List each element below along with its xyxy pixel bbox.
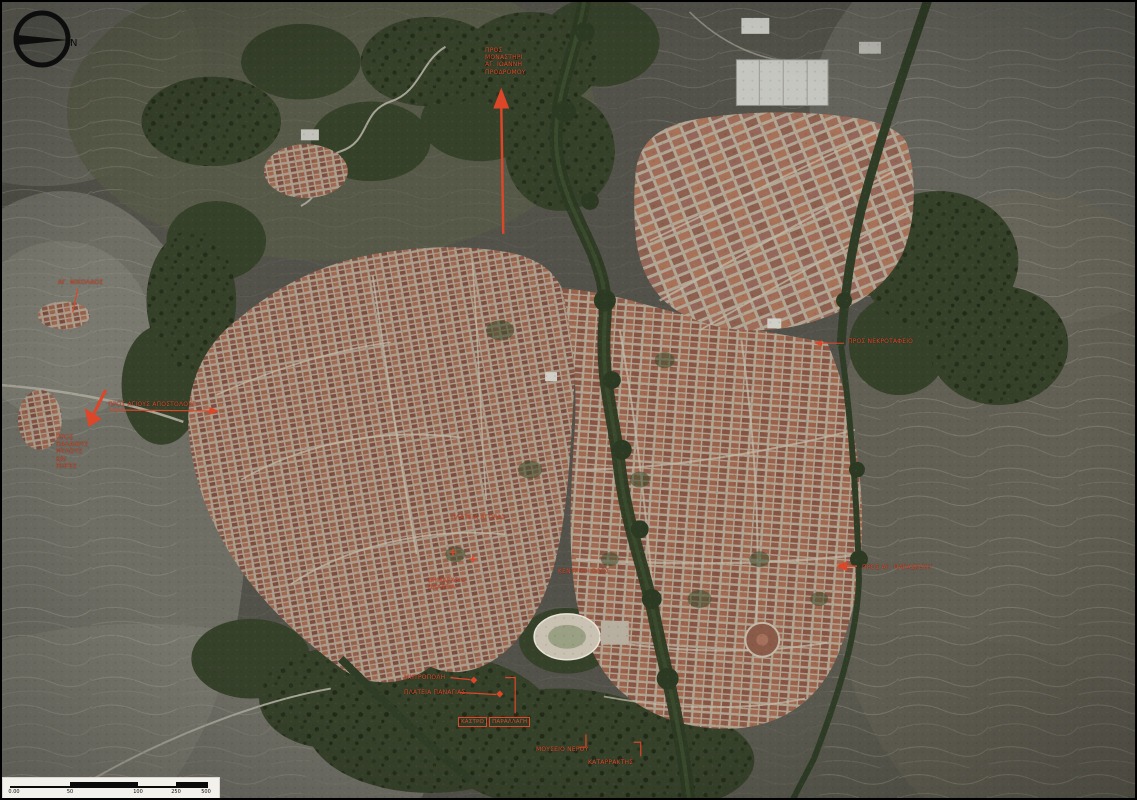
label-chapel-west: ΑΓ. ΝΙΚΟΛΑΟΣ bbox=[58, 279, 103, 286]
scale-tick: 0.00 bbox=[8, 790, 19, 795]
label-springs-west: ΠΡΟΣ ΠΑΛΑΙΟΥΣ ΜΥΛΟΥΣ ΚΑΙ ΠΗΓΕΣ bbox=[56, 434, 88, 470]
label-cathedral: ΜΗΤΡΟΠΟΛΗ bbox=[404, 674, 445, 681]
label-route-west: ΠΡΟΣ ΑΓΙΟΥΣ ΑΠΟΣΤΟΛΟΥΣ bbox=[108, 401, 196, 408]
north-letter: N bbox=[70, 38, 77, 49]
label-waterfall: ΚΑΤΑΡΡΑΚΤΗΣ bbox=[588, 759, 633, 766]
scale-tick: 500 bbox=[201, 790, 211, 795]
scale-tick: 250 bbox=[171, 790, 181, 795]
label-route-northeast: ΠΡΟΣ ΝΕΚΡΟΤΑΦΕΙΟ bbox=[848, 338, 913, 345]
north-arrow: N bbox=[10, 8, 80, 74]
label-castle-boxes: ΚΑΣΤΡΟ ΠΑΡΑΛΛΑΓΗ bbox=[458, 717, 530, 727]
aerial-map-plate: ΠΡΟΣ ΜΟΝΑΣΤΗΡΙ ΑΓ. ΙΩΑΝΝΗ ΠΡΟΔΡΟΜΟΥ ΑΓ. … bbox=[0, 0, 1137, 800]
north-arrow-icon: N bbox=[10, 8, 80, 74]
label-water-museum: ΜΟΥΣΕΙΟ ΝΕΡΟΥ bbox=[536, 746, 588, 753]
label-square-center: ΠΛΑΤΕΙΑ ΑΓΟΡΑΣ bbox=[451, 514, 505, 521]
label-route-north: ΠΡΟΣ ΜΟΝΑΣΤΗΡΙ ΑΓ. ΙΩΑΝΝΗ ΠΡΟΔΡΟΜΟΥ bbox=[485, 47, 526, 76]
label-old-square: ΠΛΑΤΕΙΑ ΠΑΝΑΓΙΑΣ bbox=[404, 689, 465, 696]
label-castle-left: ΚΑΣΤΡΟ bbox=[458, 717, 487, 727]
scale-segment bbox=[70, 782, 138, 788]
aerial-photo-background bbox=[2, 2, 1135, 798]
label-main-street: ΚΕΝΤΡΙΚΗ ΟΔΟΣ bbox=[558, 568, 610, 575]
label-town-hall: ΔΗΜΑΡΧΕΙΟ ΠΛΑΤΕΙΑ bbox=[428, 577, 466, 591]
label-route-east: ΠΡΟΣ ΑΓ. ΠΑΡΑΣΚΕΥΗ bbox=[862, 564, 931, 571]
label-castle-right: ΠΑΡΑΛΛΑΓΗ bbox=[489, 717, 530, 727]
vignette bbox=[2, 2, 1135, 798]
scale-tick: 100 bbox=[133, 790, 143, 795]
scale-segment bbox=[176, 782, 208, 788]
scale-bar: 0.00 50 100 250 500 bbox=[2, 777, 220, 800]
scale-tick: 50 bbox=[67, 790, 73, 795]
